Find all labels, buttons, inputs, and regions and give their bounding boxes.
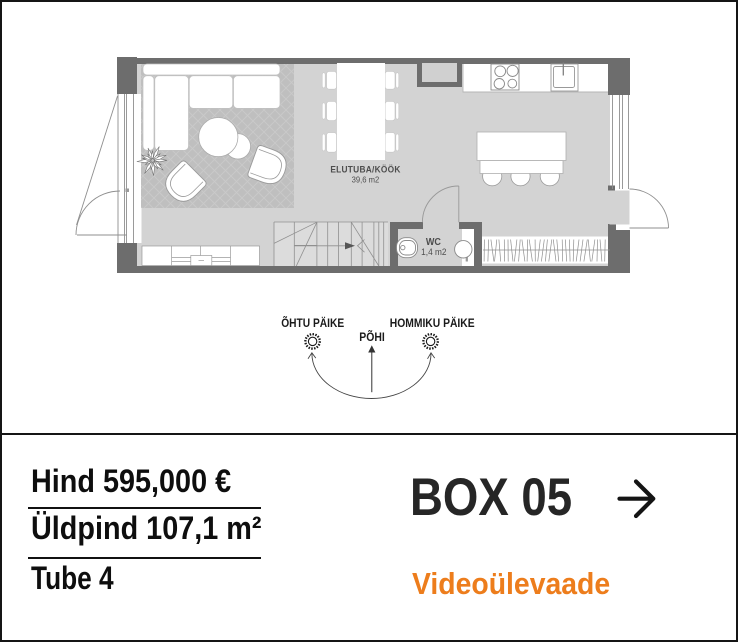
svg-text:ELUTUBA/KÖÖK: ELUTUBA/KÖÖK [330, 164, 401, 175]
svg-text:PÕHI: PÕHI [359, 330, 384, 344]
svg-text:39,6 m2: 39,6 m2 [352, 175, 380, 184]
svg-text:1,4 m2: 1,4 m2 [421, 246, 446, 257]
svg-text:HOMMIKU PÄIKE: HOMMIKU PÄIKE [390, 316, 475, 330]
svg-text:ÕHTU PÄIKE: ÕHTU PÄIKE [281, 316, 344, 330]
